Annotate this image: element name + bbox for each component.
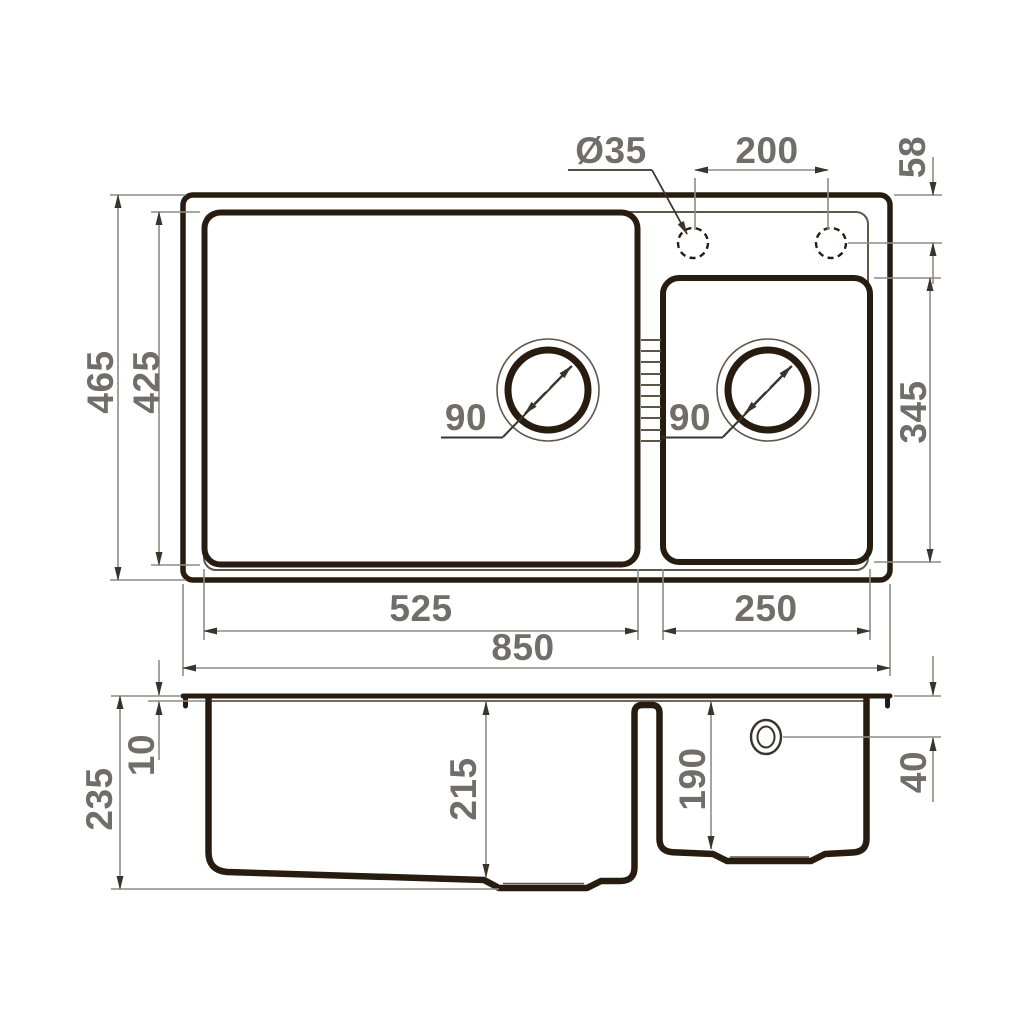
top-view: 90 90 Ø35 200	[80, 130, 942, 676]
label-left-bowl-inner-depth: 215	[443, 757, 484, 820]
dim-overall-height	[111, 696, 499, 889]
overflow-hole	[751, 720, 781, 754]
label-left-bowl-width: 525	[389, 588, 452, 629]
section-view: 235 10 215 190 40	[79, 656, 941, 889]
faucet-hole-right	[816, 228, 846, 258]
faucet-hole-left	[678, 228, 708, 258]
sink-outer-edge	[183, 195, 890, 580]
label-faucet-hole-edge-offset: 58	[892, 136, 933, 178]
label-overall-height: 235	[79, 767, 120, 830]
drawing-canvas: 90 90 Ø35 200	[0, 0, 1024, 1024]
label-overall-width: 850	[491, 627, 554, 668]
divider-grooves	[641, 340, 661, 441]
label-right-bowl-inner-depth: 190	[672, 747, 713, 810]
label-right-bowl-depth: 345	[893, 380, 934, 443]
label-bowl-depth: 425	[126, 350, 167, 413]
label-right-bowl-width: 250	[734, 588, 797, 629]
label-right-drain-diameter: 90	[669, 397, 711, 438]
left-bowl	[205, 213, 638, 565]
label-left-drain-diameter: 90	[445, 397, 487, 438]
label-overflow-offset: 40	[893, 751, 934, 793]
label-rim-height: 10	[121, 734, 162, 776]
sink-dimension-drawing: 90 90 Ø35 200	[0, 0, 1024, 1024]
label-faucet-hole-spacing: 200	[735, 130, 798, 171]
dim-faucet-hole-spacing	[695, 170, 828, 230]
label-overall-depth: 465	[80, 350, 121, 413]
dim-faucet-hole-diameter	[568, 170, 687, 234]
label-faucet-hole-diameter: Ø35	[575, 130, 646, 171]
